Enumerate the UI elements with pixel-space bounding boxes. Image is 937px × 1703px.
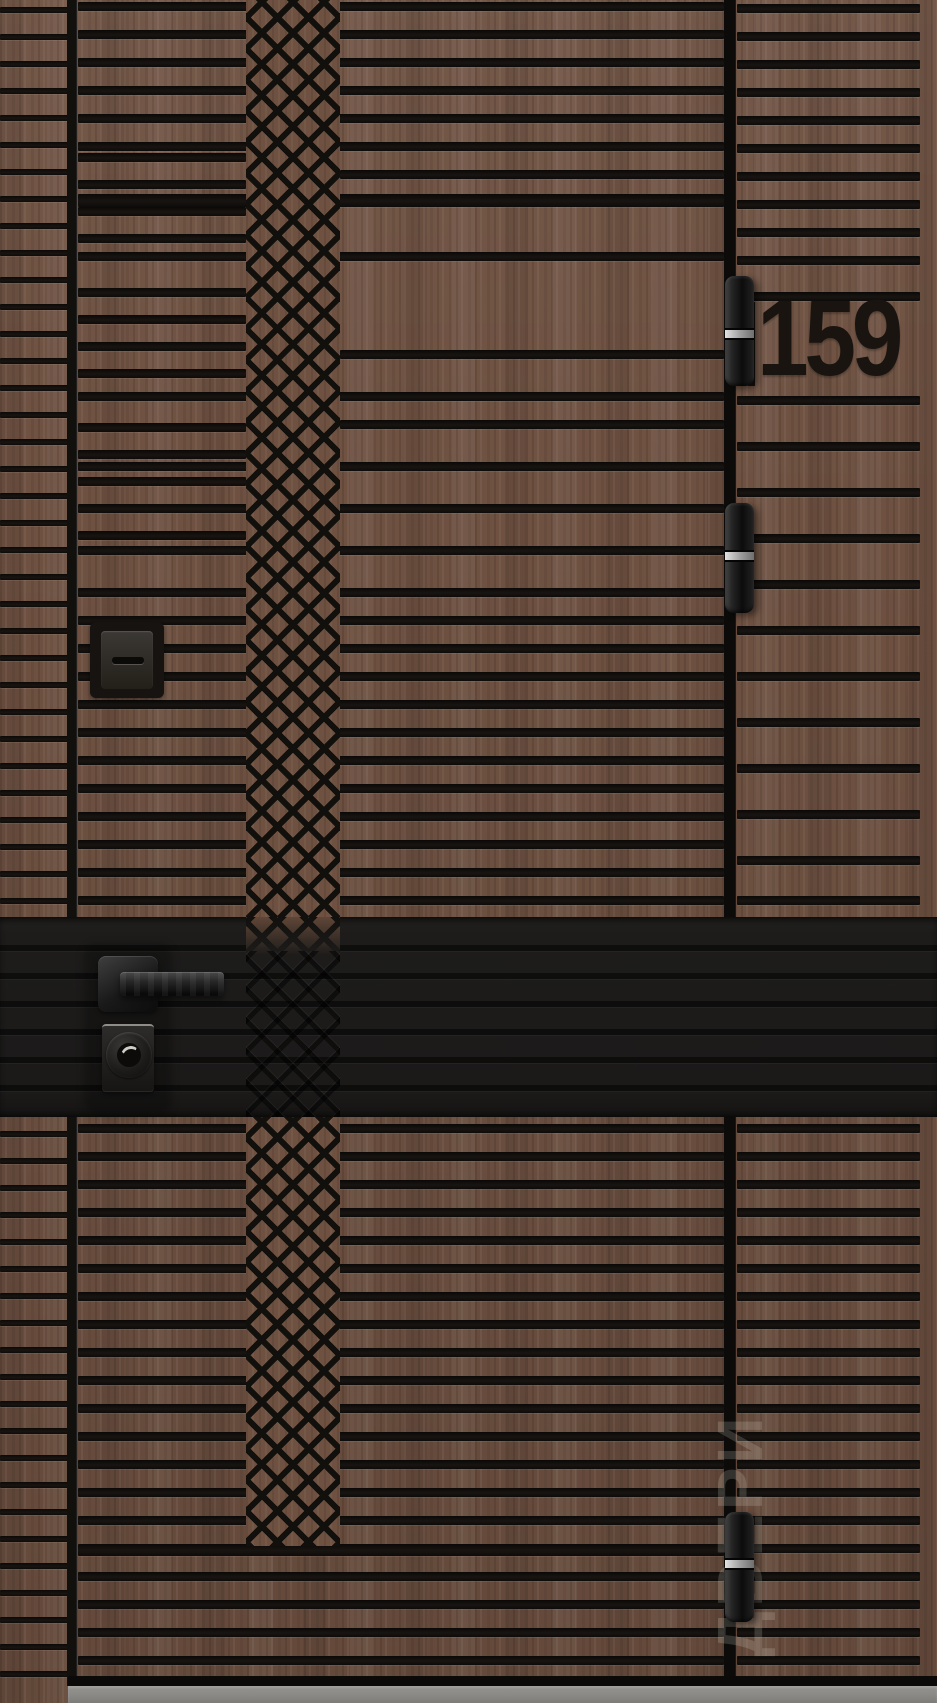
frame-slat-groove bbox=[0, 1428, 68, 1434]
panel-slat-groove bbox=[78, 840, 724, 849]
diamond-lattice-column bbox=[246, 0, 340, 1546]
panel-slat-groove bbox=[78, 288, 246, 297]
side-panel-slat-groove bbox=[737, 4, 920, 13]
frame-slat-groove bbox=[0, 1644, 68, 1650]
side-panel-slat-groove bbox=[737, 534, 920, 543]
house-number: 159 bbox=[757, 288, 899, 388]
panel-slat-groove bbox=[78, 153, 246, 162]
side-panel-slat-groove bbox=[737, 88, 920, 97]
panel-slat-groove bbox=[78, 1516, 724, 1525]
frame-slat-groove bbox=[0, 88, 68, 94]
frame-slat-groove bbox=[0, 1131, 68, 1137]
frame-slat-groove bbox=[0, 574, 68, 580]
panel-slat-groove bbox=[78, 86, 724, 95]
frame-slat-groove bbox=[0, 655, 68, 661]
panel-slat-groove bbox=[78, 868, 724, 877]
threshold-sill bbox=[68, 1686, 937, 1703]
slat-groove-layer bbox=[0, 0, 937, 1703]
panel-slat-groove bbox=[78, 477, 246, 486]
side-panel-slat-groove bbox=[737, 810, 920, 819]
side-panel-slat-groove bbox=[737, 172, 920, 181]
panel-slat-groove bbox=[340, 420, 724, 429]
frame-slat-groove bbox=[0, 1455, 68, 1461]
panel-slat-groove bbox=[78, 531, 246, 540]
frame-slat-groove bbox=[0, 1158, 68, 1164]
frame-slat-groove bbox=[0, 385, 68, 391]
frame-slat-groove bbox=[0, 61, 68, 67]
side-panel-slat-groove bbox=[737, 626, 920, 635]
panel-slat-groove bbox=[78, 812, 724, 821]
panel-slat-groove bbox=[78, 1376, 724, 1385]
panel-slat-groove bbox=[78, 1236, 724, 1245]
side-panel-slat-groove bbox=[737, 1208, 920, 1217]
side-panel-slat-groove bbox=[737, 856, 920, 865]
lattice-relief-on-band bbox=[246, 951, 340, 1117]
panel-slat-groove bbox=[78, 342, 246, 351]
frame-slat-groove bbox=[0, 1374, 68, 1380]
frame-slat-groove bbox=[0, 1509, 68, 1515]
panel-slat-groove bbox=[78, 1432, 724, 1441]
frame-slat-groove bbox=[0, 7, 68, 13]
hinge-metal-band bbox=[725, 1560, 754, 1568]
frame-slat-groove bbox=[0, 709, 68, 715]
door-handle-lever bbox=[120, 972, 224, 996]
panel-slat-groove bbox=[78, 700, 724, 709]
frame-slat-groove bbox=[0, 601, 68, 607]
side-panel-slat-groove bbox=[737, 116, 920, 125]
panel-slat-groove bbox=[78, 756, 724, 765]
door-bottom-shadow bbox=[68, 1676, 937, 1686]
door-hinge-2 bbox=[725, 503, 754, 613]
panel-slat-groove bbox=[78, 1600, 724, 1609]
upper-lock-keyhole-slot bbox=[112, 657, 144, 664]
side-panel-slat-groove bbox=[737, 580, 920, 589]
side-panel-slat-groove bbox=[737, 1376, 920, 1385]
door-hinge-3 bbox=[725, 1512, 754, 1622]
frame-slat-groove bbox=[0, 412, 68, 418]
panel-slat-groove bbox=[78, 644, 724, 653]
frame-slat-groove bbox=[0, 1293, 68, 1299]
frame-slat-groove bbox=[0, 1671, 68, 1677]
door-hinge-1 bbox=[725, 276, 754, 386]
panel-slat-groove bbox=[78, 1264, 724, 1273]
panel-slat-groove bbox=[78, 180, 246, 189]
hinge-metal-band bbox=[725, 330, 754, 338]
frame-slat-groove bbox=[0, 628, 68, 634]
panel-slat-groove bbox=[78, 1488, 724, 1497]
frame-slat-groove bbox=[0, 331, 68, 337]
side-panel-slat-groove bbox=[737, 1656, 920, 1665]
panel-slat-groove bbox=[78, 1656, 724, 1665]
frame-slat-groove bbox=[0, 1212, 68, 1218]
frame-slat-groove bbox=[0, 169, 68, 175]
frame-slat-groove bbox=[0, 1401, 68, 1407]
frame-slat-groove bbox=[0, 844, 68, 850]
frame-slat-groove bbox=[0, 115, 68, 121]
frame-slat-groove bbox=[0, 1590, 68, 1596]
panel-slat-groove bbox=[78, 1320, 724, 1329]
panel-slat-groove bbox=[78, 392, 724, 401]
side-panel-slat-groove bbox=[737, 200, 920, 209]
frame-slat-groove bbox=[0, 520, 68, 526]
panel-slat-groove bbox=[78, 2, 724, 11]
side-panel-slat-groove bbox=[737, 1152, 920, 1161]
frame-slat-groove bbox=[0, 817, 68, 823]
frame-slat-groove bbox=[0, 439, 68, 445]
frame-slat-groove bbox=[0, 682, 68, 688]
side-panel-slat-groove bbox=[737, 1124, 920, 1133]
panel-slat-groove bbox=[78, 315, 246, 324]
panel-slat-groove bbox=[78, 1152, 724, 1161]
side-panel-slat-groove bbox=[737, 442, 920, 451]
side-panel-slat-groove bbox=[737, 256, 920, 265]
panel-slat-groove bbox=[78, 784, 724, 793]
panel-slat-groove bbox=[78, 1460, 724, 1469]
panel-slat-groove bbox=[78, 672, 724, 681]
frame-slat-groove bbox=[0, 358, 68, 364]
side-panel-slat-groove bbox=[737, 1348, 920, 1357]
panel-slat-groove bbox=[78, 546, 724, 555]
frame-slat-groove bbox=[0, 493, 68, 499]
panel-slat-groove bbox=[78, 588, 724, 597]
panel-slat-groove bbox=[78, 194, 724, 207]
frame-slat-groove bbox=[0, 196, 68, 202]
hinge-metal-band bbox=[725, 552, 754, 560]
panel-slat-groove bbox=[78, 1124, 724, 1133]
panel-slat-groove bbox=[78, 369, 246, 378]
panel-slat-groove bbox=[340, 170, 724, 179]
side-panel-slat-groove bbox=[737, 1264, 920, 1273]
panel-slat-groove bbox=[78, 1628, 724, 1637]
side-panel-slat-groove bbox=[737, 144, 920, 153]
frame-slat-groove bbox=[0, 1617, 68, 1623]
frame-slat-groove bbox=[0, 871, 68, 877]
side-panel-slat-groove bbox=[737, 1404, 920, 1413]
side-panel-slat-groove bbox=[737, 32, 920, 41]
panel-slat-groove bbox=[78, 30, 724, 39]
panel-slat-groove bbox=[78, 1404, 724, 1413]
side-panel-slat-groove bbox=[737, 1320, 920, 1329]
side-panel-slat-groove bbox=[737, 488, 920, 497]
panel-slat-groove bbox=[78, 462, 724, 471]
panel-slat-groove bbox=[78, 423, 246, 432]
panel-slat-groove bbox=[78, 142, 724, 151]
frame-slat-groove bbox=[0, 763, 68, 769]
panel-slat-groove bbox=[78, 207, 246, 216]
side-panel-slat-groove bbox=[737, 672, 920, 681]
side-panel-slat-groove bbox=[737, 228, 920, 237]
frame-slat-groove bbox=[0, 223, 68, 229]
frame-slat-groove bbox=[0, 277, 68, 283]
side-panel-slat-groove bbox=[737, 718, 920, 727]
panel-slat-groove bbox=[78, 450, 246, 459]
side-panel-slat-groove bbox=[737, 1292, 920, 1301]
side-panel-slat-groove bbox=[737, 1180, 920, 1189]
panel-slat-groove bbox=[78, 1572, 724, 1581]
frame-slat-groove bbox=[0, 1482, 68, 1488]
side-panel-slat-groove bbox=[737, 764, 920, 773]
side-panel-slat-groove bbox=[737, 896, 920, 905]
panel-slat-groove bbox=[78, 234, 246, 243]
panel-slat-groove bbox=[78, 114, 724, 123]
panel-slat-groove bbox=[78, 504, 724, 513]
panel-slat-groove bbox=[340, 350, 724, 359]
frame-slat-groove bbox=[0, 466, 68, 472]
frame-slat-groove bbox=[0, 1185, 68, 1191]
frame-slat-groove bbox=[0, 790, 68, 796]
panel-slat-groove bbox=[78, 1180, 724, 1189]
frame-vertical-groove bbox=[67, 0, 77, 1686]
frame-slat-groove bbox=[0, 1320, 68, 1326]
frame-slat-groove bbox=[0, 250, 68, 256]
frame-slat-groove bbox=[0, 304, 68, 310]
panel-slat-groove bbox=[78, 58, 724, 67]
frame-slat-groove bbox=[0, 898, 68, 904]
panel-slat-groove bbox=[78, 1208, 724, 1217]
entrance-door-photo: ДВЕРИ 159 bbox=[0, 0, 937, 1703]
frame-slat-groove bbox=[0, 1266, 68, 1272]
panel-slat-groove bbox=[78, 252, 724, 261]
frame-slat-groove bbox=[0, 1239, 68, 1245]
panel-slat-groove bbox=[78, 728, 724, 737]
panel-slat-groove bbox=[78, 1292, 724, 1301]
frame-slat-groove bbox=[0, 142, 68, 148]
frame-slat-groove bbox=[0, 1536, 68, 1542]
side-panel-slat-groove bbox=[737, 60, 920, 69]
frame-slat-groove bbox=[0, 34, 68, 40]
frame-slat-groove bbox=[0, 1563, 68, 1569]
panel-slat-groove bbox=[78, 1544, 724, 1556]
panel-slat-groove bbox=[78, 1348, 724, 1357]
frame-slat-groove bbox=[0, 547, 68, 553]
side-panel-slat-groove bbox=[737, 1236, 920, 1245]
panel-slat-groove bbox=[78, 896, 724, 905]
frame-slat-groove bbox=[0, 736, 68, 742]
frame-slat-groove bbox=[0, 1347, 68, 1353]
panel-slat-groove bbox=[78, 616, 724, 625]
